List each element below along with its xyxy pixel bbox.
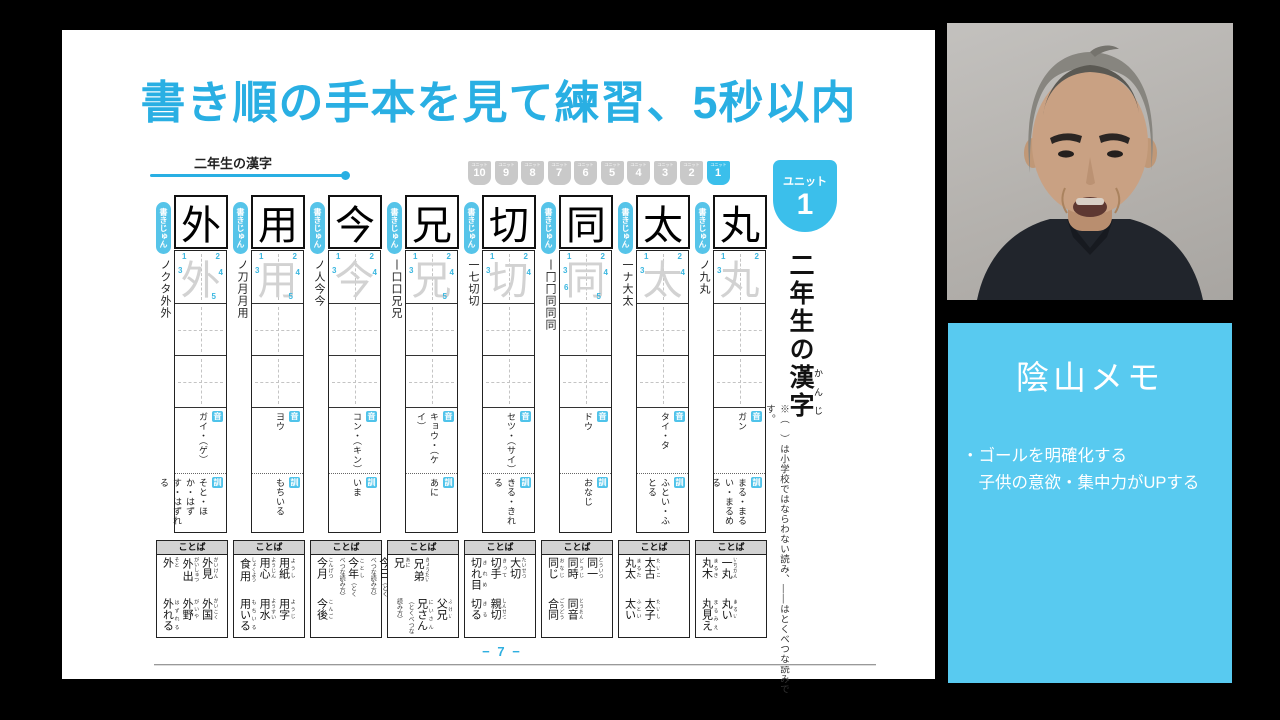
kanji-table: 書きじゅん 外 ノクタ外外 外12345 音 ガイ・（ゲ） 訓 そと・ほか・はず… (155, 195, 771, 638)
kun-reading: きる・きれる (492, 478, 518, 528)
word-entry: 外国がいこく (200, 598, 218, 638)
on-reading-cell: 音 ヨウ (252, 408, 303, 474)
practice-column: 兄12345 音 キョウ・（ケイ） 訓 あに (405, 250, 458, 533)
kun-reading: まる・まるい・まるめる (710, 478, 749, 528)
words-row-bottom: 父兄ふけい兄さんにいさん（とくべつな読み方） (390, 598, 452, 638)
word-entry: 同一どういつ (585, 557, 603, 597)
kun-reading-cell: 訓 そと・ほか・はずす・はずれる (175, 474, 226, 531)
unit-badge-3: ユニット3 (654, 161, 677, 185)
stroke-sequence: 一ナ大太 (619, 259, 634, 414)
unit-badge-row: ユニット10ユニット9ユニット8ユニット7ユニット6ユニット5ユニット4ユニット… (468, 161, 730, 185)
words-row-top: 一丸いちがん丸木まるき (698, 557, 737, 597)
stroke-number: 2 (370, 252, 374, 261)
stroke-number: 5 (597, 292, 601, 301)
stroke-number: 2 (678, 252, 682, 261)
word-entry: 丸いまるい (720, 598, 738, 638)
page-number: − 7 − (422, 644, 582, 659)
word-entry: 丸木まるき (700, 557, 718, 597)
video-frame: { "slide": { "title": "書き順の手本を見て練習、5秒以内"… (0, 0, 1280, 720)
stroke-number: 3 (563, 266, 567, 275)
words-row-top: 兄弟きょうだい兄あに (390, 557, 429, 597)
word-entry: 今後こんご (315, 598, 333, 638)
words-box: ことば 外見がいけん外出がいしゅつ外そと 外国がいこく外野がいや外れるはずれる (156, 540, 228, 638)
on-reading: ドウ (582, 412, 595, 470)
traced-kanji-cell: 今1234 (329, 251, 380, 304)
traced-kanji-cell: 切1234 (483, 251, 534, 304)
words-header: ことば (157, 541, 227, 555)
words-header: ことば (311, 541, 381, 555)
on-reading-cell: 音 セツ・（サイ） (483, 408, 534, 474)
grade-section-label: 二年生の漢字 (194, 153, 272, 172)
stroke-number: 3 (178, 266, 182, 275)
word-entry: 外れるはずれる (161, 598, 179, 638)
unit-badge-10: ユニット10 (468, 161, 491, 185)
unit-badge-1: ユニット1 (707, 161, 730, 185)
on-reading: セツ・（サイ） (505, 412, 518, 470)
on-badge: 音 (751, 411, 762, 422)
word-entry: 同音どうおん (566, 598, 584, 638)
word-entry: 食用しょくよう (238, 557, 256, 597)
word-entry: 父兄ふけい (435, 598, 453, 638)
on-reading-cell: 音 タイ・タ (637, 408, 688, 474)
stroke-number: 3 (409, 266, 413, 275)
practice-column: 用12345 音 ヨウ 訓 もちいる (251, 250, 304, 533)
unit-badge-4: ユニット4 (627, 161, 650, 185)
unit-badge-5: ユニット5 (601, 161, 624, 185)
practice-column: 今1234 音 コン・（キン） 訓 いま (328, 250, 381, 533)
kun-reading-cell: 訓 もちいる (252, 474, 303, 531)
kun-reading-cell: 訓 あに (406, 474, 457, 531)
kanji-headline: 切 (482, 195, 536, 249)
kanji-headline: 太 (636, 195, 690, 249)
word-entry: 同じおなじ (546, 557, 564, 597)
words-row-bottom: 丸いまるい丸見えまるみえ (698, 598, 737, 638)
words-body: 用紙ようし用心ようじん食用しょくよう 用字ようじ用水ようすい用いるもちいる (234, 555, 304, 638)
words-body: 一丸いちがん丸木まるき 丸いまるい丸見えまるみえ (696, 555, 766, 638)
presenter-portrait (947, 23, 1233, 300)
on-badge: 音 (597, 411, 608, 422)
slide-title: 書き順の手本を見て練習、5秒以内 (62, 66, 935, 131)
on-reading-cell: 音 ドウ (560, 408, 611, 474)
stroke-number: 4 (527, 268, 531, 277)
words-box: ことば 一丸いちがん丸木まるき 丸いまるい丸見えまるみえ (695, 540, 767, 638)
kun-reading-cell: 訓 ふとい・ふとる (637, 474, 688, 531)
traced-kanji-cell: 外12345 (175, 251, 226, 304)
worksheet-slide: 書き順の手本を見て練習、5秒以内 二年生の漢字 ユニット10ユニット9ユニット8… (62, 30, 935, 679)
stroke-number: 2 (601, 252, 605, 261)
unit-badge-9: ユニット9 (495, 161, 518, 185)
words-row-top: 外見がいけん外出がいしゅつ外そと (159, 557, 218, 597)
on-badge: 音 (212, 411, 223, 422)
stroke-sequence: ノ人今今 (311, 259, 326, 414)
kanji-headline: 兄 (405, 195, 459, 249)
stroke-order-tab: 書きじゅん (618, 202, 633, 254)
traced-kanji: 切 (489, 248, 529, 306)
kun-reading: そと・ほか・はずす・はずれる (158, 478, 210, 528)
practice-cell (329, 356, 380, 408)
stroke-number: 1 (413, 252, 417, 261)
words-row-top: 大切たいせつ切手きって切れ目きれめ (467, 557, 526, 597)
word-entry: 用字ようじ (277, 598, 295, 638)
practice-cell (560, 304, 611, 356)
kanji-column-兄: 書きじゅん 兄 丨口口兄兄 兄12345 音 キョウ・（ケイ） 訓 あに ことば… (386, 195, 463, 638)
word-entry: 一丸いちがん (720, 557, 738, 597)
on-badge: 音 (520, 411, 531, 422)
practice-cell (714, 304, 765, 356)
stroke-number: 2 (447, 252, 451, 261)
on-reading: キョウ・（ケイ） (415, 412, 441, 470)
practice-column: 外12345 音 ガイ・（ゲ） 訓 そと・ほか・はずす・はずれる (174, 250, 227, 533)
kanji-column-切: 書きじゅん 切 一七切切 切1234 音 セツ・（サイ） 訓 きる・きれる こと… (463, 195, 540, 638)
stroke-sequence: 丨口口兄兄 (388, 259, 403, 414)
stroke-number: 2 (524, 252, 528, 261)
words-row-bottom: 親切しんせつ切るきる (467, 598, 506, 638)
stroke-number: 1 (259, 252, 263, 261)
on-badge: 音 (366, 411, 377, 422)
words-body: 同一どういつ同時どうじ同じおなじ 同音どうおん合同ごうどう (542, 555, 612, 638)
word-entry: 同時どうじ (566, 557, 584, 597)
traced-kanji: 丸 (720, 248, 760, 306)
word-entry: 太いふとい (623, 598, 641, 638)
stroke-number: 5 (289, 292, 293, 301)
practice-cell (406, 304, 457, 356)
stroke-number: 1 (644, 252, 648, 261)
kun-badge: 訓 (443, 477, 454, 488)
stroke-sequence: ノ九丸 (696, 259, 711, 414)
kun-badge: 訓 (289, 477, 300, 488)
words-header: ことば (234, 541, 304, 555)
memo-lines: ・ゴールを明確化する 子供の意欲・集中力がUPする (948, 443, 1232, 497)
stroke-number: 4 (604, 268, 608, 277)
practice-cell (175, 356, 226, 408)
stroke-order-tab: 書きじゅん (387, 202, 402, 254)
words-box: ことば 用紙ようし用心ようじん食用しょくよう 用字ようじ用水ようすい用いるもちい… (233, 540, 305, 638)
practice-cell (483, 356, 534, 408)
word-entry: 今年ことし（とくべつな読み方） (335, 557, 364, 597)
stroke-order-tab: 書きじゅん (541, 202, 556, 254)
unit-badge-2: ユニット2 (680, 161, 703, 185)
stroke-order-tab: 書きじゅん (464, 202, 479, 254)
traced-kanji-cell: 丸123 (714, 251, 765, 304)
words-header: ことば (388, 541, 458, 555)
word-entry: 兄あに (392, 557, 410, 597)
words-body: 今日きょう（とくべつな読み方）今年ことし（とくべつな読み方）今月こんげつ 今後こ… (311, 555, 381, 638)
word-entry: 切手きって (489, 557, 507, 597)
on-reading-cell: 音 コン・（キン） (329, 408, 380, 474)
unit-1-badge: ユニット 1 (773, 160, 837, 232)
words-row-top: 同一どういつ同時どうじ同じおなじ (544, 557, 603, 597)
stroke-number: 1 (567, 252, 571, 261)
kun-badge: 訓 (212, 477, 223, 488)
word-entry: 切るきる (469, 598, 487, 638)
words-body: 太古たいこ丸太まるた 太子たいし太いふとい (619, 555, 689, 638)
stroke-number: 2 (293, 252, 297, 261)
stroke-number: 2 (755, 252, 759, 261)
word-entry: 親切しんせつ (489, 598, 507, 638)
word-entry: 合同ごうどう (546, 598, 564, 638)
stroke-order-tab: 書きじゅん (310, 202, 325, 254)
kun-reading: もちいる (274, 478, 287, 528)
practice-column: 同123456 音 ドウ 訓 おなじ (559, 250, 612, 533)
words-header: ことば (696, 541, 766, 555)
word-entry: 用心ようじん (258, 557, 276, 597)
stroke-number: 3 (332, 266, 336, 275)
stroke-number: 3 (717, 266, 721, 275)
words-row-bottom: 今後こんご (313, 598, 333, 638)
stroke-number: 6 (564, 283, 568, 292)
word-entry: 外出がいしゅつ (181, 557, 199, 597)
stroke-number: 4 (373, 268, 377, 277)
special-reading-note: （とくべつな読み方） (396, 598, 414, 634)
word-entry: 兄さんにいさん（とくべつな読み方） (392, 598, 433, 638)
practice-cell (483, 304, 534, 356)
kun-badge: 訓 (597, 477, 608, 488)
word-entry: 今月こんげつ (315, 557, 333, 597)
stroke-number: 1 (336, 252, 340, 261)
words-header: ことば (465, 541, 535, 555)
words-row-top: 太古たいこ丸太まるた (621, 557, 660, 597)
word-entry: 用紙ようし (277, 557, 295, 597)
memo-line: ・ゴールを明確化する (962, 443, 1232, 470)
kanji-headline: 外 (174, 195, 228, 249)
practice-cell (329, 304, 380, 356)
practice-cell (175, 304, 226, 356)
kun-reading: ふとい・ふとる (646, 478, 672, 528)
words-body: 兄弟きょうだい兄あに 父兄ふけい兄さんにいさん（とくべつな読み方） (388, 555, 458, 638)
words-row-top: 用紙ようし用心ようじん食用しょくよう (236, 557, 295, 597)
on-badge: 音 (674, 411, 685, 422)
kanji-column-丸: 書きじゅん 丸 ノ九丸 丸123 音 ガン 訓 まる・まるい・まるめる ことば … (694, 195, 771, 638)
kun-reading-cell: 訓 きる・きれる (483, 474, 534, 531)
memo-panel: 陰山メモ ・ゴールを明確化する 子供の意欲・集中力がUPする (948, 323, 1232, 683)
practice-cell (637, 304, 688, 356)
stroke-number: 1 (490, 252, 494, 261)
kun-reading-cell: 訓 まる・まるい・まるめる (714, 474, 765, 531)
kun-badge: 訓 (520, 477, 531, 488)
word-entry: 大切たいせつ (508, 557, 526, 597)
kanji-headline: 丸 (713, 195, 767, 249)
on-reading-cell: 音 ガイ・（ゲ） (175, 408, 226, 474)
kun-badge: 訓 (366, 477, 377, 488)
words-body: 大切たいせつ切手きって切れ目きれめ 親切しんせつ切るきる (465, 555, 535, 638)
stroke-number: 3 (640, 266, 644, 275)
stroke-order-tab: 書きじゅん (695, 202, 710, 254)
memo-title: 陰山メモ (948, 351, 1232, 399)
words-row-bottom: 同音どうおん合同ごうどう (544, 598, 583, 638)
stroke-number: 4 (450, 268, 454, 277)
on-reading: タイ・タ (659, 412, 672, 470)
kanji-headline: 用 (251, 195, 305, 249)
stroke-number: 4 (296, 268, 300, 277)
words-row-top: 今日きょう（とくべつな読み方）今年ことし（とくべつな読み方）今月こんげつ (313, 557, 395, 597)
words-body: 外見がいけん外出がいしゅつ外そと 外国がいこく外野がいや外れるはずれる (157, 555, 227, 638)
stroke-number: 4 (219, 268, 223, 277)
on-reading: ヨウ (274, 412, 287, 470)
practice-column: 切1234 音 セツ・（サイ） 訓 きる・きれる (482, 250, 535, 533)
kanji-column-外: 書きじゅん 外 ノクタ外外 外12345 音 ガイ・（ゲ） 訓 そと・ほか・はず… (155, 195, 232, 638)
stroke-order-tab: 書きじゅん (233, 202, 248, 254)
words-box: ことば 同一どういつ同時どうじ同じおなじ 同音どうおん合同ごうどう (541, 540, 613, 638)
word-entry: 外野がいや (181, 598, 199, 638)
stroke-number: 5 (443, 292, 447, 301)
stroke-sequence: 一七切切 (465, 259, 480, 414)
word-entry: 兄弟きょうだい (412, 557, 430, 597)
words-row-bottom: 太子たいし太いふとい (621, 598, 660, 638)
kun-reading-cell: 訓 いま (329, 474, 380, 531)
traced-kanji-cell: 兄12345 (406, 251, 457, 304)
word-entry: 用水ようすい (258, 598, 276, 638)
unit-badge-6: ユニット6 (574, 161, 597, 185)
practice-cell (252, 304, 303, 356)
practice-column: 太1234 音 タイ・タ 訓 ふとい・ふとる (636, 250, 689, 533)
stroke-sequence: 丨冂冂同同同 (542, 259, 557, 414)
traced-kanji: 今 (335, 248, 375, 306)
word-entry: 太古たいこ (643, 557, 661, 597)
kanji-column-今: 書きじゅん 今 ノ人今今 今1234 音 コン・（キン） 訓 いま ことば 今日… (309, 195, 386, 638)
memo-line: 子供の意欲・集中力がUPする (962, 470, 1232, 497)
word-entry: 用いるもちいる (238, 598, 256, 638)
stroke-number: 3 (486, 266, 490, 275)
stroke-sequence: ノ刀月月用 (234, 259, 249, 414)
traced-kanji-cell: 同123456 (560, 251, 611, 304)
kun-reading: おなじ (582, 478, 595, 528)
on-reading-cell: 音 ガン (714, 408, 765, 474)
traced-kanji: 太 (643, 248, 683, 306)
word-entry: 丸見えまるみえ (700, 598, 718, 638)
kanji-column-同: 書きじゅん 同 丨冂冂同同同 同123456 音 ドウ 訓 おなじ ことば 同一… (540, 195, 617, 638)
words-header: ことば (619, 541, 689, 555)
words-box: ことば 太古たいこ丸太まるた 太子たいし太いふとい (618, 540, 690, 638)
on-reading-cell: 音 キョウ・（ケイ） (406, 408, 457, 474)
words-row-bottom: 用字ようじ用水ようすい用いるもちいる (236, 598, 295, 638)
on-badge: 音 (443, 411, 454, 422)
unit-badge-7: ユニット7 (548, 161, 571, 185)
on-reading: コン・（キン） (351, 412, 364, 470)
stroke-number: 2 (216, 252, 220, 261)
words-row-bottom: 外国がいこく外野がいや外れるはずれる (159, 598, 218, 638)
kun-reading: あに (428, 478, 441, 528)
stroke-number: 1 (182, 252, 186, 261)
traced-kanji-cell: 太1234 (637, 251, 688, 304)
unit-badge-label: ユニット (773, 173, 837, 189)
words-box: ことば 今日きょう（とくべつな読み方）今年ことし（とくべつな読み方）今月こんげつ… (310, 540, 382, 638)
words-box: ことば 大切たいせつ切手きって切れ目きれめ 親切しんせつ切るきる (464, 540, 536, 638)
stroke-number: 1 (721, 252, 725, 261)
practice-cell (637, 356, 688, 408)
words-header: ことば (542, 541, 612, 555)
stroke-number: 3 (255, 266, 259, 275)
kun-badge: 訓 (674, 477, 685, 488)
section-underline (150, 174, 346, 177)
unit-badge-8: ユニット8 (521, 161, 544, 185)
on-badge: 音 (289, 411, 300, 422)
on-reading: ガン (736, 412, 749, 470)
practice-cell (406, 356, 457, 408)
kanji-headline: 今 (328, 195, 382, 249)
practice-column: 丸123 音 ガン 訓 まる・まるい・まるめる (713, 250, 766, 533)
word-entry: 外見がいけん (200, 557, 218, 597)
practice-cell (560, 356, 611, 408)
presenter-webcam (947, 23, 1233, 300)
on-reading: ガイ・（ゲ） (197, 412, 210, 470)
stroke-number: 5 (212, 292, 216, 301)
stroke-number: 4 (681, 268, 685, 277)
words-box: ことば 兄弟きょうだい兄あに 父兄ふけい兄さんにいさん（とくべつな読み方） (387, 540, 459, 638)
word-entry: 太子たいし (643, 598, 661, 638)
word-entry: 切れ目きれめ (469, 557, 487, 597)
kun-reading-cell: 訓 おなじ (560, 474, 611, 531)
practice-cell (714, 356, 765, 408)
kanji-column-用: 書きじゅん 用 ノ刀月月用 用12345 音 ヨウ 訓 もちいる ことば 用紙よ… (232, 195, 309, 638)
kanji-headline: 同 (559, 195, 613, 249)
stroke-sequence: ノクタ外外 (157, 259, 172, 414)
unit-badge-number: 1 (773, 189, 837, 221)
practice-cell (252, 356, 303, 408)
footer-divider (154, 664, 876, 666)
word-entry: 丸太まるた (623, 557, 641, 597)
kun-badge: 訓 (751, 477, 762, 488)
stroke-order-tab: 書きじゅん (156, 202, 171, 254)
word-entry: 外そと (161, 557, 179, 597)
kun-reading: いま (351, 478, 364, 528)
traced-kanji-cell: 用12345 (252, 251, 303, 304)
kanji-column-太: 書きじゅん 太 一ナ大太 太1234 音 タイ・タ 訓 ふとい・ふとる ことば … (617, 195, 694, 638)
